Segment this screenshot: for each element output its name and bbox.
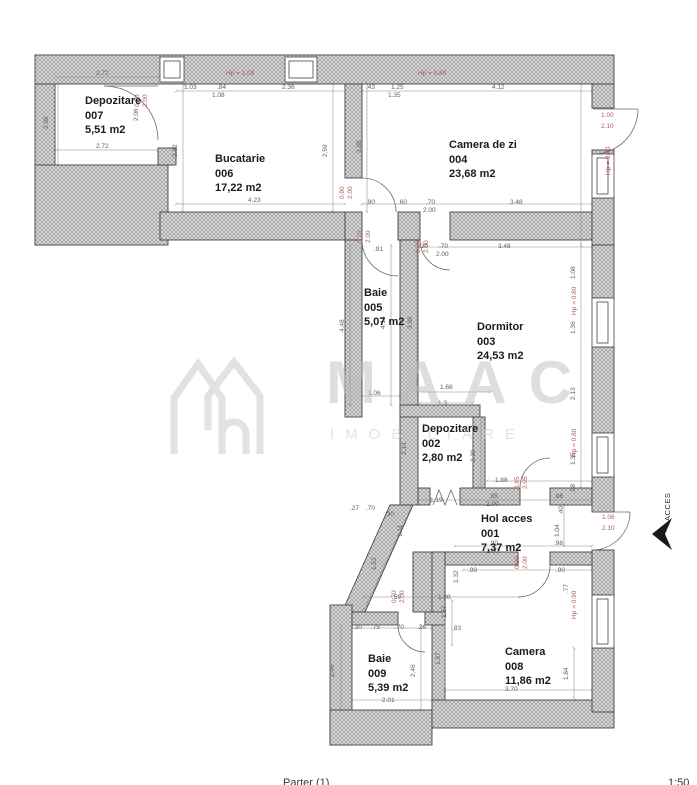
room-number: 007 [85,109,141,124]
room-label-bucatarie-006: Bucatarie 006 17,22 m2 [215,152,265,196]
room-label-baie-009: Baie 009 5,39 m2 [368,652,408,696]
room-number: 008 [505,660,551,675]
access-arrow-icon [652,518,672,550]
room-name: Bucatarie [215,152,265,167]
room-name: Depozitare [85,94,141,109]
room-number: 001 [481,527,532,542]
room-name: Hol acces [481,512,532,527]
room-name: Depozitare [422,422,478,437]
room-number: 009 [368,667,408,682]
access-label: ACCES [663,493,672,521]
room-number: 006 [215,167,265,182]
room-name: Camera [505,645,551,660]
walls [35,55,614,745]
room-area: 2,80 m2 [422,451,478,466]
room-area: 7,37 m2 [481,541,532,556]
room-area: 5,39 m2 [368,681,408,696]
room-area: 17,22 m2 [215,181,265,196]
room-area: 24,53 m2 [477,349,523,364]
room-area: 11,86 m2 [505,674,551,689]
room-name: Dormitor [477,320,523,335]
room-name: Camera de zi [449,138,517,153]
room-area: 23,68 m2 [449,167,517,182]
room-label-camera-008: Camera 008 11,86 m2 [505,645,551,689]
room-name: Baie [368,652,408,667]
room-area: 5,07 m2 [364,315,404,330]
room-label-dormitor-003: Dormitor 003 24,53 m2 [477,320,523,364]
room-area: 5,51 m2 [85,123,141,138]
room-number: 002 [422,437,478,452]
scale-label: 1:50 [668,777,689,785]
room-number: 003 [477,335,523,350]
room-label-hol-acces-001: Hol acces 001 7,37 m2 [481,512,532,556]
floorplan: Depozitare 007 5,51 m2 Bucatarie 006 17,… [0,0,697,785]
room-label-depozitare-007: Depozitare 007 5,51 m2 [85,94,141,138]
room-label-camera-de-zi-004: Camera de zi 004 23,68 m2 [449,138,517,182]
floor-label: Parter (1) [283,777,329,785]
room-number: 005 [364,301,404,316]
room-number: 004 [449,153,517,168]
room-name: Baie [364,286,404,301]
room-label-depozitare-002: Depozitare 002 2,80 m2 [422,422,478,466]
room-label-baie-005: Baie 005 5,07 m2 [364,286,404,330]
